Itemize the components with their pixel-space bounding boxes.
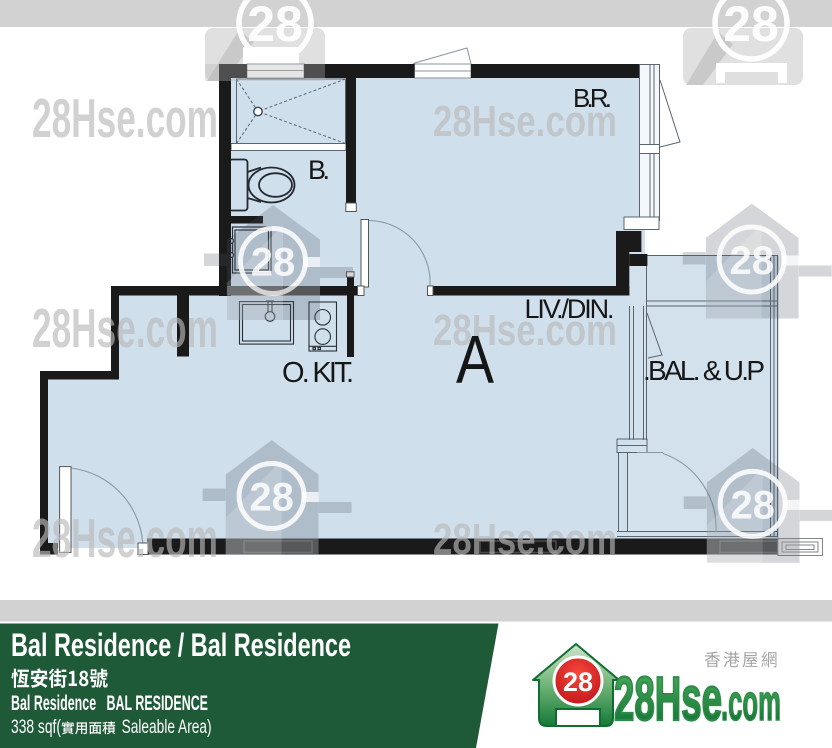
svg-text:O. KIT.: O. KIT. — [282, 357, 354, 389]
svg-text:28: 28 — [249, 476, 294, 520]
svg-text:28: 28 — [563, 667, 593, 697]
svg-text:A: A — [456, 322, 495, 398]
svg-text:338 sqf(: 338 sqf( — [11, 716, 61, 738]
svg-text:28: 28 — [251, 241, 296, 285]
svg-text:Bal Residence BAL RESIDENCE: Bal Residence BAL RESIDENCE — [11, 692, 208, 715]
svg-text:28Hse.com: 28Hse.com — [32, 297, 218, 359]
svg-text:.BAL. & U.P: .BAL. & U.P — [643, 355, 765, 386]
svg-text:Saleable Area): Saleable Area) — [122, 716, 212, 738]
svg-text:Bal Residence / Bal Residence: Bal Residence / Bal Residence — [11, 627, 351, 663]
svg-text:B.: B. — [308, 155, 330, 185]
svg-text:LIV./DIN.: LIV./DIN. — [525, 294, 615, 324]
svg-text:28Hse.com: 28Hse.com — [433, 515, 617, 564]
svg-text:28: 28 — [730, 483, 775, 527]
svg-text:.com: .com — [721, 674, 781, 731]
svg-text:28: 28 — [729, 239, 774, 283]
svg-text:B.R.: B.R. — [573, 83, 612, 113]
svg-text:28Hse.com: 28Hse.com — [32, 87, 218, 149]
svg-text:28Hse: 28Hse — [614, 665, 722, 734]
svg-text:28: 28 — [723, 0, 779, 52]
svg-text:28Hse.com: 28Hse.com — [32, 507, 218, 569]
svg-text:28: 28 — [247, 0, 303, 52]
